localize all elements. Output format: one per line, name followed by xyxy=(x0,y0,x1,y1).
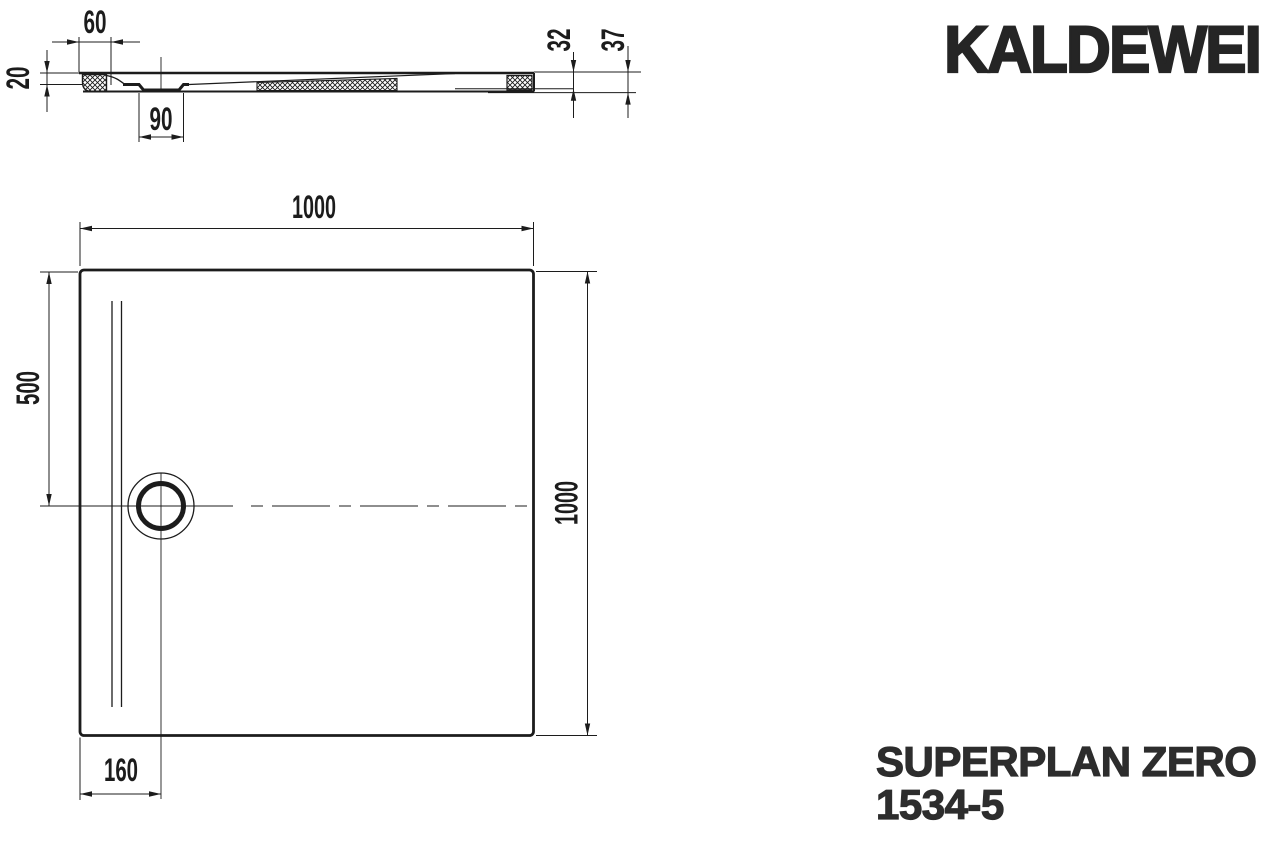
dim-plan-1000-top: 1000 xyxy=(80,189,534,266)
dim-label-500: 500 xyxy=(10,371,46,405)
drain-outlet xyxy=(128,473,194,799)
dim-label-32: 32 xyxy=(541,29,577,52)
dim-label-20: 20 xyxy=(0,67,36,90)
dim-plan-1000-right: 1000 xyxy=(536,272,597,736)
product-name: SUPERPLAN ZERO xyxy=(876,740,1256,783)
dim-section-90: 90 xyxy=(139,93,184,142)
dim-section-37: 37 xyxy=(595,29,631,119)
dim-plan-160: 160 xyxy=(80,738,161,801)
kaldewei-logo: KALDEWEI xyxy=(944,16,1260,82)
product-model: 1534-5 xyxy=(876,783,1256,826)
dim-label-60: 60 xyxy=(84,4,107,40)
shower-tray-drawing: 60 20 90 32 xyxy=(0,0,1280,845)
dim-section-32: 32 xyxy=(541,29,577,119)
dim-plan-500: 500 xyxy=(10,272,78,506)
drain-recess-profile xyxy=(123,85,189,91)
left-rim-hatch xyxy=(83,75,107,92)
right-rim-hatch xyxy=(507,76,532,91)
dim-label-37: 37 xyxy=(595,29,631,52)
product-title-block: SUPERPLAN ZERO 1534-5 xyxy=(876,740,1256,826)
tray-outline xyxy=(80,270,534,736)
dim-label-90: 90 xyxy=(150,101,173,137)
technical-drawing-sheet: KALDEWEI xyxy=(0,0,1280,845)
slope-lines xyxy=(112,301,122,707)
dim-label-160: 160 xyxy=(104,752,138,788)
plan-view: 1000 1000 500 160 xyxy=(10,189,597,800)
dim-section-20: 20 xyxy=(0,50,83,112)
section-view: 60 20 90 32 xyxy=(0,4,641,142)
dim-label-1000-right: 1000 xyxy=(549,481,585,525)
dim-label-1000-top: 1000 xyxy=(292,189,336,225)
